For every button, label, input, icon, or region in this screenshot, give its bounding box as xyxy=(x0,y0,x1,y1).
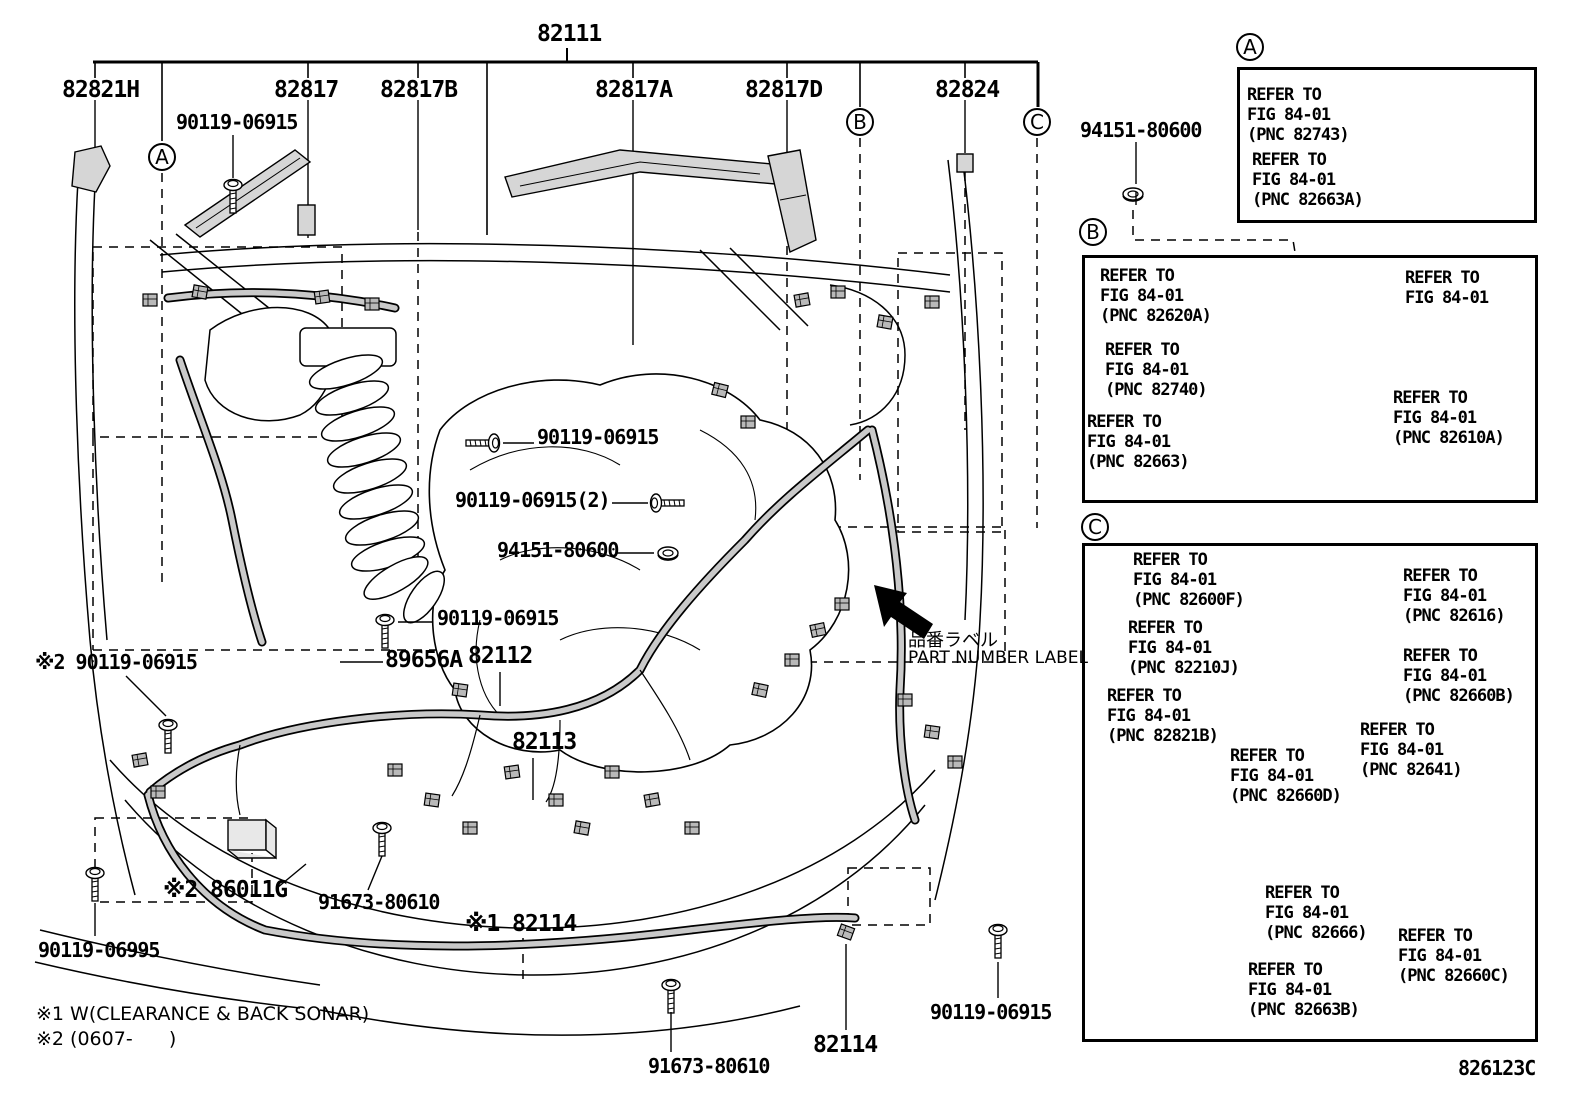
part-label-90119-06995: 90119-06995 xyxy=(38,940,159,961)
callout-c: C xyxy=(1023,108,1051,136)
refer-c-82663b: REFER TO FIG 84-01 (PNC 82663B) xyxy=(1248,960,1359,1020)
part-label-82817a: 82817A xyxy=(595,78,672,102)
part-label-90119-06915-c3: 90119-06915 xyxy=(437,608,558,629)
part-label-82114-2: 82114 xyxy=(813,1033,877,1057)
part-label-91673-80610-2: 91673-80610 xyxy=(648,1056,769,1077)
part-label-82111: 82111 xyxy=(537,22,601,46)
panel-b-letter: B xyxy=(1079,218,1107,246)
refer-b-82663: REFER TO FIG 84-01 (PNC 82663) xyxy=(1087,412,1189,472)
parts-diagram-page: A B C A B C 82111 82821H 90119-06915 828… xyxy=(0,0,1592,1099)
refer-a-82663a: REFER TO FIG 84-01 (PNC 82663A) xyxy=(1252,150,1363,210)
part-label-82821h: 82821H xyxy=(62,78,139,102)
part-label-82817: 82817 xyxy=(274,78,338,102)
part-label-90119-06915-c1: 90119-06915 xyxy=(537,427,658,448)
refer-c-82821b: REFER TO FIG 84-01 (PNC 82821B) xyxy=(1107,686,1218,746)
footnote-1: ※1 W(CLEARANCE & BACK SONAR) xyxy=(36,1003,369,1025)
refer-a-82743: REFER TO FIG 84-01 (PNC 82743) xyxy=(1247,85,1349,145)
refer-c-82641: REFER TO FIG 84-01 (PNC 82641) xyxy=(1360,720,1462,780)
part-label-90119-06915-topleft: 90119-06915 xyxy=(176,112,297,133)
panel-a-letter: A xyxy=(1236,33,1264,61)
part-label-82113: 82113 xyxy=(512,730,576,754)
refer-b-plain: REFER TO FIG 84-01 xyxy=(1405,268,1488,308)
refer-c-82660b: REFER TO FIG 84-01 (PNC 82660B) xyxy=(1403,646,1514,706)
refer-c-82666: REFER TO FIG 84-01 (PNC 82666) xyxy=(1265,883,1367,943)
figure-code: 826123C xyxy=(1458,1058,1535,1079)
refer-c-82616: REFER TO FIG 84-01 (PNC 82616) xyxy=(1403,566,1505,626)
refer-c-82660c: REFER TO FIG 84-01 (PNC 82660C) xyxy=(1398,926,1509,986)
refer-b-82740: REFER TO FIG 84-01 (PNC 82740) xyxy=(1105,340,1207,400)
part-label-82817d: 82817D xyxy=(745,78,822,102)
part-label-86011g: ※2 86011G xyxy=(163,878,287,902)
refer-c-82210j: REFER TO FIG 84-01 (PNC 82210J) xyxy=(1128,618,1239,678)
footnote-2: ※2 (0607- ) xyxy=(36,1028,176,1050)
part-label-82114-1: ※1 82114 xyxy=(465,912,576,936)
part-label-91673-80610-1: 91673-80610 xyxy=(318,892,439,913)
part-label-82817b: 82817B xyxy=(380,78,457,102)
part-label-82824: 82824 xyxy=(935,78,999,102)
part-label-82112: 82112 xyxy=(468,644,532,668)
part-number-label-en: PART NUMBER LABEL xyxy=(908,648,1088,668)
panel-c-letter: C xyxy=(1081,513,1109,541)
part-label-89656a: 89656A xyxy=(385,648,462,672)
part-label-90119-06915-c2: 90119-06915(2) xyxy=(455,490,610,511)
refer-b-82610a: REFER TO FIG 84-01 (PNC 82610A) xyxy=(1393,388,1504,448)
refer-c-82660d: REFER TO FIG 84-01 (PNC 82660D) xyxy=(1230,746,1341,806)
part-label-90119-06915-left: ※2 90119-06915 xyxy=(35,652,197,673)
refer-b-82620a: REFER TO FIG 84-01 (PNC 82620A) xyxy=(1100,266,1211,326)
callout-b: B xyxy=(846,108,874,136)
part-label-94151-80600-right: 94151-80600 xyxy=(1080,120,1201,141)
part-label-94151-80600-c: 94151-80600 xyxy=(497,540,618,561)
refer-c-82600f: REFER TO FIG 84-01 (PNC 82600F) xyxy=(1133,550,1244,610)
part-label-90119-06915-br: 90119-06915 xyxy=(930,1002,1051,1023)
callout-a: A xyxy=(148,143,176,171)
